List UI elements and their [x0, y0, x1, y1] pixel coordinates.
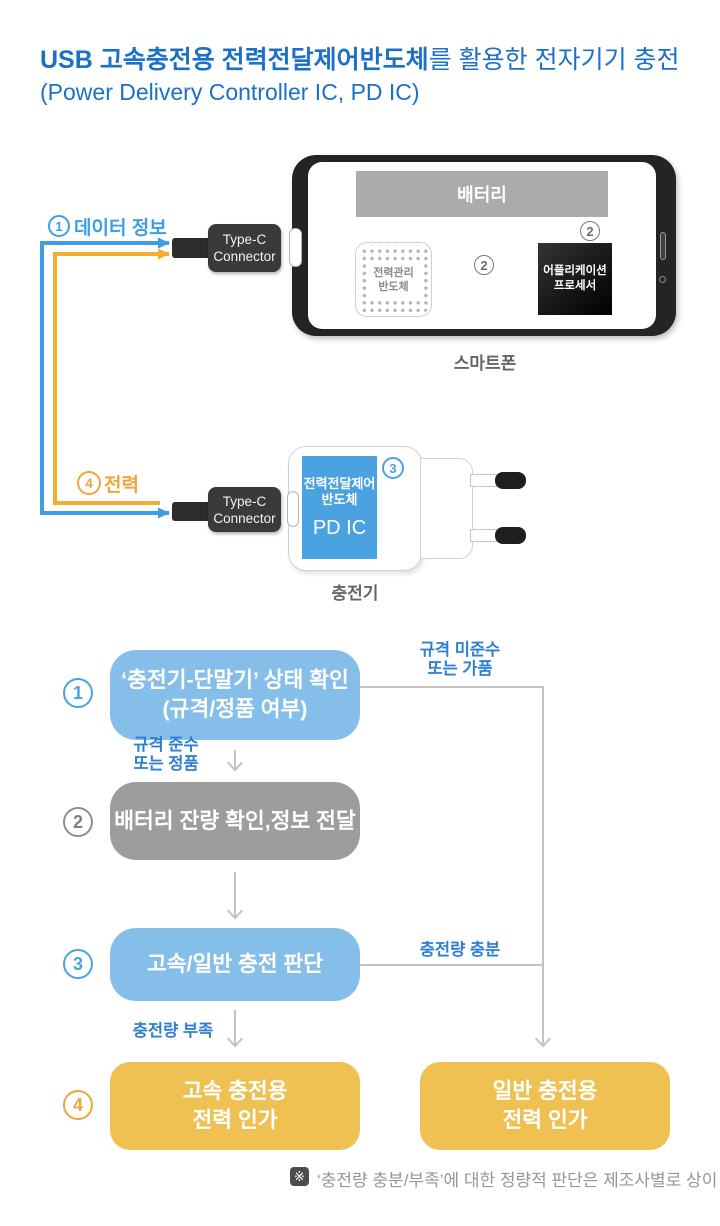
charger-prong-bottom-tip: [495, 527, 526, 544]
flow-step4-fast-box: 고속 충전용 전력 인가: [110, 1062, 360, 1150]
flow-step4-fast-line2: 전력 인가: [192, 1106, 277, 1135]
link-number-battery-ap: 2: [580, 221, 600, 241]
branch-label-charge-enough-text: 충전량 충분: [420, 941, 500, 959]
flow-step4-normal-line1: 일반 충전용: [493, 1077, 598, 1106]
charger-caption: 충전기: [315, 579, 395, 604]
power-flow-number: 4: [77, 471, 101, 495]
flow-step3-number-text: 3: [73, 954, 83, 975]
page-title-strong: USB 고속충전용 전력전달제어반도체: [40, 46, 429, 74]
flow-step1-line1: ‘충전기-단말기’ 상태 확인: [121, 666, 349, 695]
battery-label: 배터리: [457, 181, 507, 207]
typec-bottom-line1: Type-C: [223, 493, 267, 510]
flow-step4-normal-line2: 전력 인가: [502, 1106, 587, 1135]
flow-step2-number-text: 2: [73, 812, 83, 833]
data-flow-number: 1: [48, 215, 70, 237]
flow-step2-number: 2: [63, 807, 93, 837]
typec-bottom-line2: Connector: [213, 510, 275, 527]
charger-caption-text: 충전기: [332, 579, 379, 604]
pmic-label-line2: 반도체: [378, 280, 408, 294]
footnote: ※ ‘충전량 충분/부족’에 대한 정량적 판단은 제조사별로 상이: [290, 1166, 717, 1191]
pmic-chip-label: 전력관리 반도체: [367, 262, 421, 298]
link-number-battery-ap-text: 2: [586, 224, 593, 239]
branch-label-noncompliant-line2: 또는 가품: [385, 660, 535, 679]
charger-prong-top-tip: [495, 472, 526, 489]
charger-plug-block: [420, 458, 473, 559]
phone-port-slot: [289, 228, 302, 267]
ap-label-line1: 어플리케이션: [543, 264, 606, 279]
charger-prong-bottom-stem: [470, 529, 498, 542]
charger-step-number-text: 3: [389, 461, 396, 476]
flow-step3-number: 3: [63, 949, 93, 979]
infographic-canvas: USB 고속충전용 전력전달제어반도체를 활용한 전자기기 충전 (Power …: [0, 0, 720, 1226]
flow-step1-line2: (규격/정품 여부): [163, 695, 308, 724]
flow-step3-box: 고속/일반 충전 판단: [110, 928, 360, 1001]
footnote-mark-icon: ※: [290, 1167, 309, 1186]
ap-label-line2: 프로세서: [554, 279, 596, 294]
flow-step4-normal-box: 일반 충전용 전력 인가: [420, 1062, 670, 1150]
typec-plug-top: [172, 238, 212, 258]
branch-label-charge-enough: 충전량 충분: [385, 941, 535, 960]
phone-camera-dot: [659, 276, 666, 283]
pmic-chip: 전력관리 반도체: [355, 242, 432, 317]
page-title: USB 고속충전용 전력전달제어반도체를 활용한 전자기기 충전: [40, 40, 680, 76]
flow-step4-number: 4: [63, 1090, 93, 1120]
branch-label-charge-low: 충전량 부족: [123, 1022, 223, 1041]
footnote-text: ‘충전량 충분/부족’에 대한 정량적 판단은 제조사별로 상이: [317, 1166, 717, 1191]
branch-label-noncompliant-line1: 규격 미준수: [385, 641, 535, 660]
battery-block: 배터리: [356, 171, 608, 217]
branch-label-compliant-line2: 또는 정품: [116, 755, 216, 774]
flow-step1-box: ‘충전기-단말기’ 상태 확인 (규격/정품 여부): [110, 650, 360, 740]
flow-branch-fail-line: [360, 687, 543, 1046]
pdic-line1: 전력전달제어: [304, 476, 376, 492]
flow-step2-label: 배터리 잔량 확인,정보 전달: [114, 807, 355, 836]
charger-prong-top-stem: [470, 474, 498, 487]
branch-label-noncompliant: 규격 미준수 또는 가품: [385, 641, 535, 679]
power-flow-label: 전력: [104, 470, 139, 497]
pdic-line2: 반도체: [322, 492, 358, 508]
typec-connector-bottom: Type-C Connector: [208, 487, 281, 532]
application-processor-block: 어플리케이션 프로세서: [538, 243, 612, 315]
pdic-block: 전력전달제어 반도체 PD IC: [302, 456, 377, 559]
smartphone-caption: 스마트폰: [425, 349, 545, 374]
flow-step1-number: 1: [63, 678, 93, 708]
footnote-mark-text: ※: [294, 1169, 305, 1185]
link-number-pmic-ap: 2: [474, 255, 494, 275]
flow-step2-box: 배터리 잔량 확인,정보 전달: [110, 782, 360, 860]
link-number-pmic-ap-text: 2: [480, 258, 487, 273]
page-subtitle: (Power Delivery Controller IC, PD IC): [40, 79, 420, 106]
typec-top-line1: Type-C: [223, 231, 267, 248]
flow-step1-number-text: 1: [73, 683, 83, 704]
branch-label-compliant-line1: 규격 준수: [116, 736, 216, 755]
smartphone-caption-text: 스마트폰: [454, 349, 517, 374]
typec-top-line2: Connector: [213, 248, 275, 265]
data-flow-number-text: 1: [55, 219, 62, 234]
data-flow-label: 데이터 정보: [74, 213, 167, 240]
branch-label-charge-low-text: 충전량 부족: [133, 1022, 213, 1040]
charger-port-slot: [287, 491, 299, 527]
page-title-rest: 를 활용한 전자기기 충전: [429, 46, 680, 74]
typec-plug-bottom: [172, 502, 212, 521]
typec-connector-top: Type-C Connector: [208, 224, 281, 272]
flow-step4-fast-line1: 고속 충전용: [183, 1077, 288, 1106]
flow-step4-number-text: 4: [73, 1095, 83, 1116]
power-flow-number-text: 4: [85, 475, 93, 491]
pdic-line3: PD IC: [313, 517, 366, 540]
phone-side-button: [660, 232, 666, 260]
power-flow-line: [55, 254, 169, 503]
branch-label-compliant: 규격 준수 또는 정품: [116, 736, 216, 774]
flow-step3-label: 고속/일반 충전 판단: [147, 950, 323, 979]
pmic-label-line1: 전력관리: [373, 266, 413, 280]
charger-step-number: 3: [382, 457, 404, 479]
